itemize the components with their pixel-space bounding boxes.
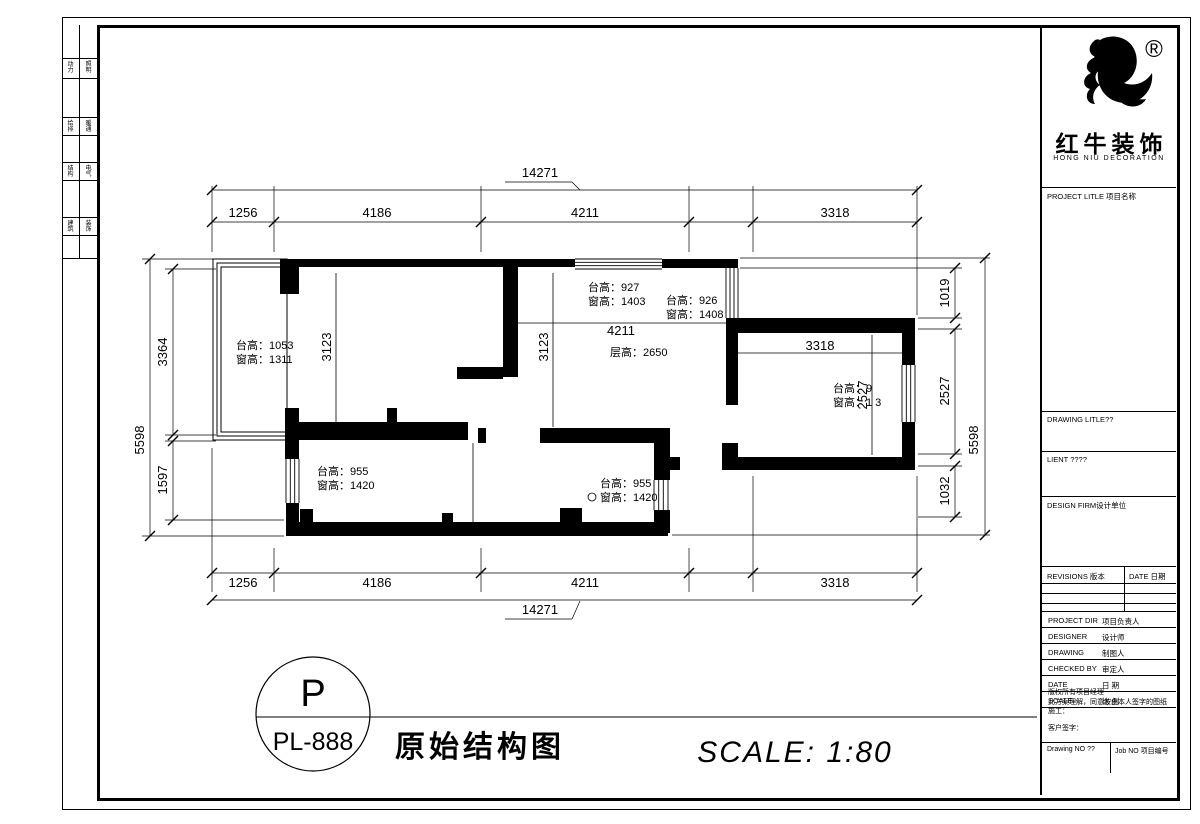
authorization-line: 版权所有项目经理 — [1048, 688, 1171, 698]
client-box: LIENT ???? — [1042, 452, 1176, 497]
design-firm-label: DESIGN FIRM设计单位 — [1047, 500, 1126, 511]
design-firm-box: DESIGN FIRM设计单位 — [1042, 497, 1176, 567]
sheet-main-border — [97, 25, 1180, 801]
discipline-strip: 动力 照明 给排 暖通 结构 电气 建筑 装饰 — [62, 25, 97, 259]
strip-cell: 暖通 — [80, 117, 97, 137]
strip-cell: 照明 — [80, 58, 97, 78]
revisions-label: REVISIONS 版本 — [1047, 571, 1105, 582]
strip-cell: 结构 — [62, 162, 79, 182]
field-designer: DESIGNER设计师 — [1042, 628, 1176, 644]
revisions-date-label: DATE 日期 — [1129, 571, 1166, 582]
drawing-title-box: DRAWING LITLE?? — [1042, 412, 1176, 452]
field-drawing: DRAWING制图人 — [1042, 644, 1176, 660]
field-checked-by: CHECKED BY审定人 — [1042, 660, 1176, 676]
authorization-block: 版权所有项目经理 此方案理解，同意按由本人签字的图纸施工： 客户签字： — [1042, 683, 1176, 743]
title-block-sidebar: ® 红牛装饰 HONG NIU DECORATION PROJECT LITLE… — [1040, 25, 1176, 795]
strip-cell: 建筑 — [62, 217, 79, 237]
brand-name: 红牛装饰 — [1042, 125, 1176, 159]
bull-logo-icon: ® — [1042, 25, 1176, 120]
brand-name-en: HONG NIU DECORATION — [1042, 155, 1176, 162]
authorization-line: 此方案理解，同意按由本人签字的图纸施工： — [1048, 698, 1171, 717]
project-title-label: PROJECT LITLE 项目名称 — [1047, 191, 1136, 202]
field-project-dir: PROJECT DIR项目负责人 — [1042, 612, 1176, 628]
registered-mark: ® — [1145, 36, 1163, 63]
drawing-title-label: DRAWING LITLE?? — [1047, 415, 1113, 424]
job-no-label: Job NO 项目编号 — [1115, 746, 1169, 756]
drawing-number-row: Drawing NO ?? Job NO 项目编号 — [1042, 743, 1176, 773]
customer-signature-label: 客户签字： — [1048, 724, 1171, 734]
client-label: LIENT ???? — [1047, 455, 1087, 464]
revisions-table: REVISIONS 版本 DATE 日期 — [1042, 567, 1176, 612]
project-title-box: PROJECT LITLE 项目名称 — [1042, 188, 1176, 412]
strip-cell: 动力 — [62, 58, 79, 78]
logo-box: ® 红牛装饰 HONG NIU DECORATION — [1042, 25, 1176, 188]
strip-cell: 给排 — [62, 117, 79, 137]
drawing-no-label: Drawing NO ?? — [1047, 746, 1095, 753]
strip-cell: 装饰 — [80, 217, 97, 237]
drawing-sheet: 14271 1256 4186 4211 3318 1256 4186 4211… — [0, 0, 1200, 824]
strip-cell: 电气 — [80, 162, 97, 182]
